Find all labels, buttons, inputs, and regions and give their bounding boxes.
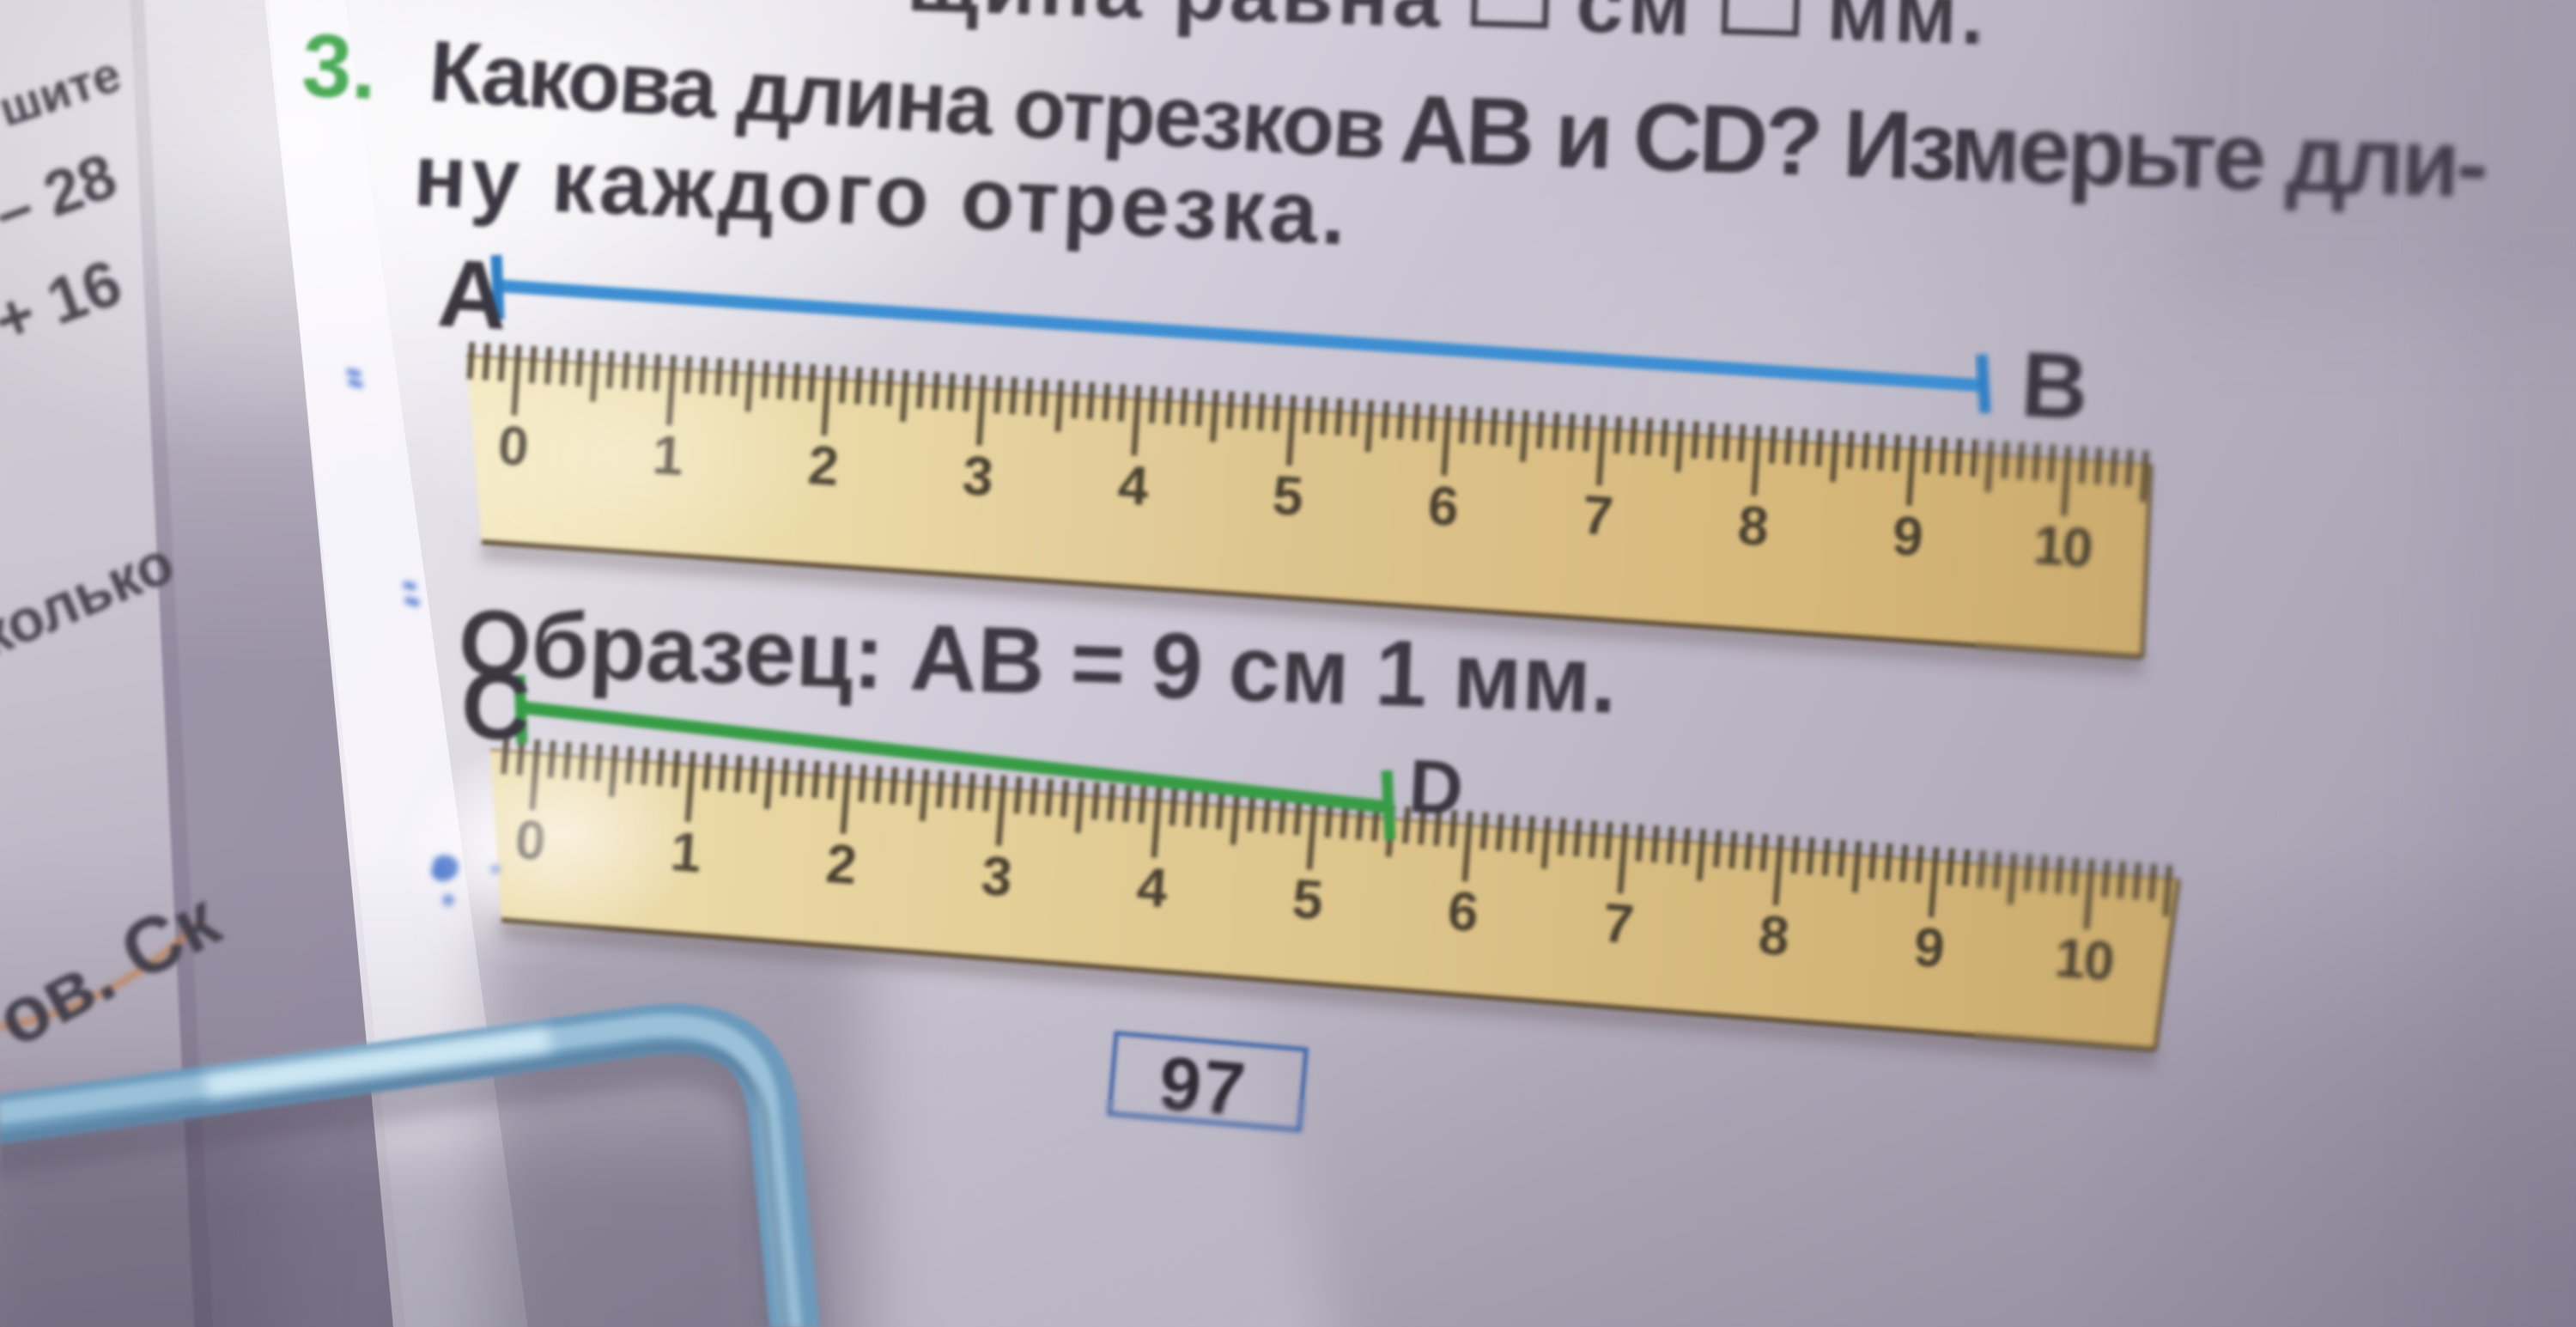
svg-text:D: D xyxy=(1406,743,1466,831)
svg-text:1: 1 xyxy=(651,423,684,487)
svg-text:В: В xyxy=(2019,332,2091,439)
svg-text:97: 97 xyxy=(1156,1040,1250,1132)
svg-text:2: 2 xyxy=(823,832,857,896)
svg-text:5: 5 xyxy=(1290,867,1323,931)
svg-text:8: 8 xyxy=(1736,494,1770,557)
svg-text:5: 5 xyxy=(1271,464,1304,527)
svg-text:3: 3 xyxy=(979,844,1012,908)
svg-text:0: 0 xyxy=(513,808,546,872)
svg-text:3: 3 xyxy=(961,444,994,508)
svg-text:1: 1 xyxy=(668,820,702,884)
svg-text:0: 0 xyxy=(496,414,529,478)
svg-text:6: 6 xyxy=(1445,880,1479,943)
svg-text:7: 7 xyxy=(1601,892,1634,955)
svg-text:7: 7 xyxy=(1581,484,1613,547)
svg-text:8: 8 xyxy=(1756,904,1789,967)
svg-text:10: 10 xyxy=(2032,514,2093,579)
svg-text:А: А xyxy=(435,239,510,350)
svg-text:С: С xyxy=(459,650,533,761)
svg-text:9: 9 xyxy=(1891,504,1924,568)
svg-text:9: 9 xyxy=(1911,916,1945,979)
svg-text:10: 10 xyxy=(2053,927,2116,993)
svg-text:6: 6 xyxy=(1426,474,1460,538)
svg-text:2: 2 xyxy=(806,434,840,497)
